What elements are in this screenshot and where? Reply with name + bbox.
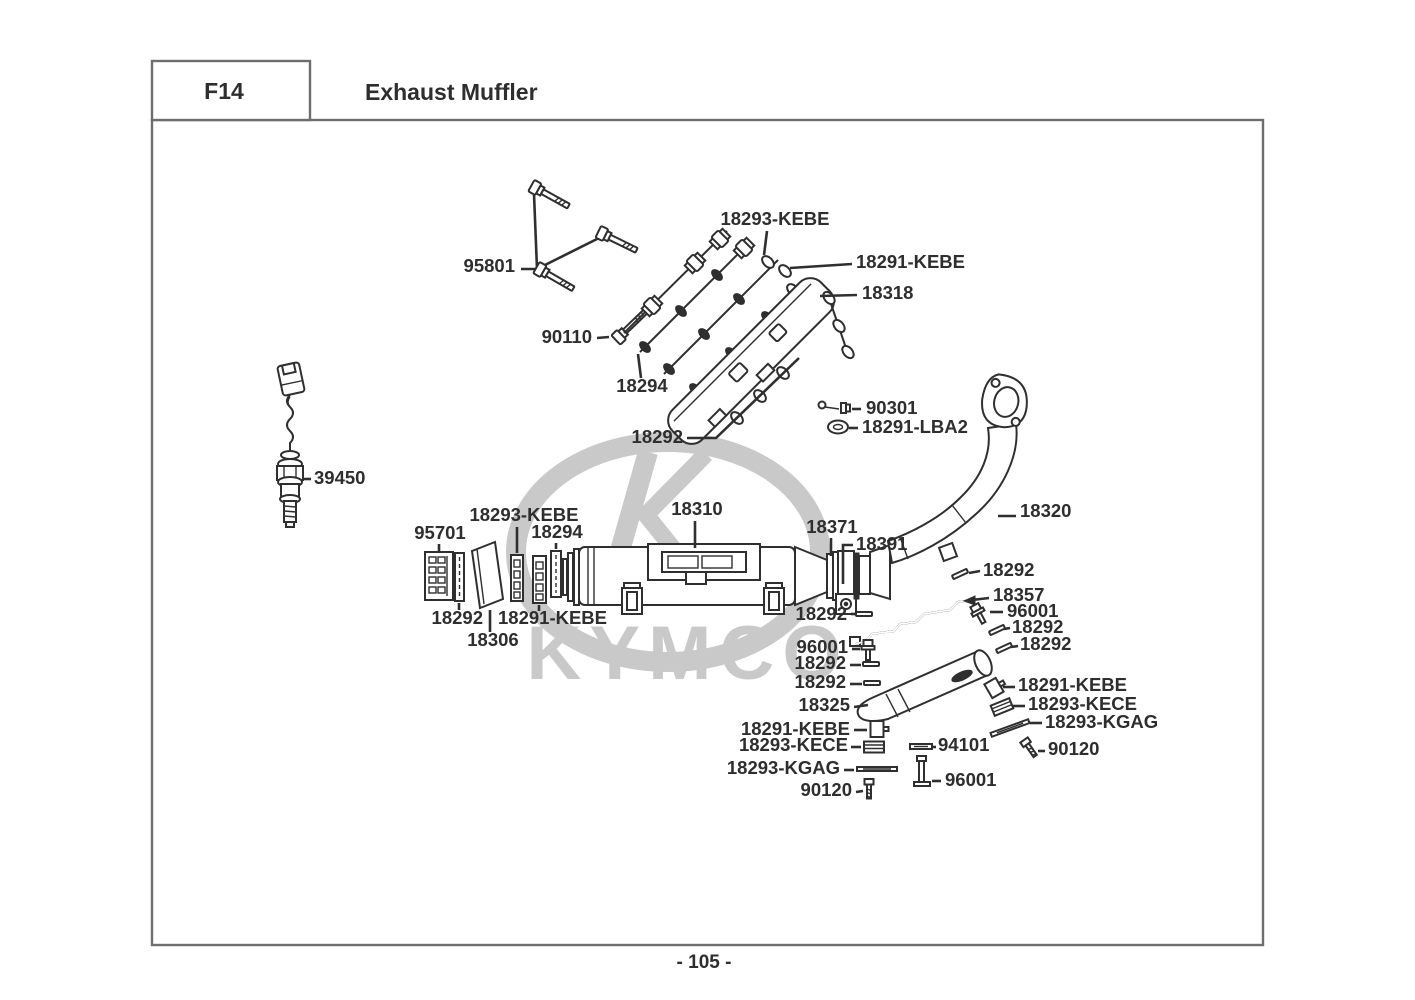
part-label-94101: 94101 <box>938 734 989 755</box>
muffler-18310 <box>563 521 827 614</box>
part-label-39450: 39450 <box>314 467 365 488</box>
part-label-18292-shield: 18292 <box>632 426 683 447</box>
part-label-18293-kece-left: 18293-KECE <box>739 734 848 755</box>
part-label-18325: 18325 <box>799 694 850 715</box>
page-number: - 105 - <box>677 952 732 973</box>
part-label-90120-right: 90120 <box>1048 738 1099 759</box>
part-label-18291-lba2: 18291-LBA2 <box>862 416 968 437</box>
part-label-18306: 18306 <box>467 629 518 650</box>
stay-bracket-18357 <box>850 596 989 646</box>
screw-90301 <box>819 402 862 414</box>
part-label-18293-kgag-right: 18293-KGAG <box>1045 711 1158 732</box>
downpipe-flange <box>977 371 1034 432</box>
part-label-18310: 18310 <box>671 498 722 519</box>
part-label-96001-bottom: 96001 <box>945 769 996 790</box>
diagram-border <box>152 120 1263 945</box>
mount-bolts-95801 <box>521 180 639 295</box>
fasteners-bottom-middle <box>910 744 941 786</box>
part-label-90301: 90301 <box>866 397 917 418</box>
gasket-plate-18292-row <box>455 553 464 610</box>
gasket-plate-18291-kebe-row <box>533 556 546 611</box>
leader-18291-kebe-top <box>790 264 852 268</box>
part-label-18294-top: 18294 <box>616 375 668 396</box>
part-label-95801: 95801 <box>464 255 515 276</box>
oxygen-sensor-39450 <box>277 362 311 527</box>
part-label-18292-left1: 18292 <box>795 652 846 673</box>
leader-18318 <box>820 295 857 296</box>
heat-shield-18318 <box>662 263 856 452</box>
bolt-96001-bottom <box>914 756 930 786</box>
part-label-18371: 18371 <box>806 516 857 537</box>
gasket-18291-lba2 <box>828 421 858 434</box>
bolt-90110 <box>597 306 651 345</box>
part-label-18291-kebe-top: 18291-KEBE <box>856 251 965 272</box>
gasket-plate-18294-row <box>551 543 561 597</box>
part-label-90110: 90110 <box>542 326 592 347</box>
part-label-18294-row: 18294 <box>531 521 583 542</box>
part-label-18292-pipe: 18292 <box>983 559 1034 580</box>
part-label-18293-kebe-top: 18293-KEBE <box>720 208 829 229</box>
page-title: Exhaust Muffler <box>365 79 538 105</box>
part-label-18391: 18391 <box>856 533 907 554</box>
leader-18293-kebe-top <box>764 231 767 255</box>
part-label-18292-clamp: 18292 <box>796 603 847 624</box>
section-code: F14 <box>204 78 244 104</box>
part-label-18291-kebe-row: 18291-KEBE <box>498 607 607 628</box>
part-label-18292-row: 18292 <box>432 607 483 628</box>
part-label-18292-left2: 18292 <box>795 671 846 692</box>
part-label-18292-right3: 18292 <box>1020 633 1071 654</box>
catalog-page: KYMCO F14 Exhaust Muffler - 105 - <box>0 0 1415 1000</box>
part-label-18320: 18320 <box>1020 500 1071 521</box>
part-label-18293-kgag-left: 18293-KGAG <box>727 757 840 778</box>
part-label-18291-kebe-right: 18291-KEBE <box>1018 674 1127 695</box>
part-label-95701: 95701 <box>414 522 465 543</box>
part-label-18318: 18318 <box>862 282 913 303</box>
part-label-90120-left: 90120 <box>801 779 852 800</box>
gasket-block-95701 <box>425 544 453 600</box>
